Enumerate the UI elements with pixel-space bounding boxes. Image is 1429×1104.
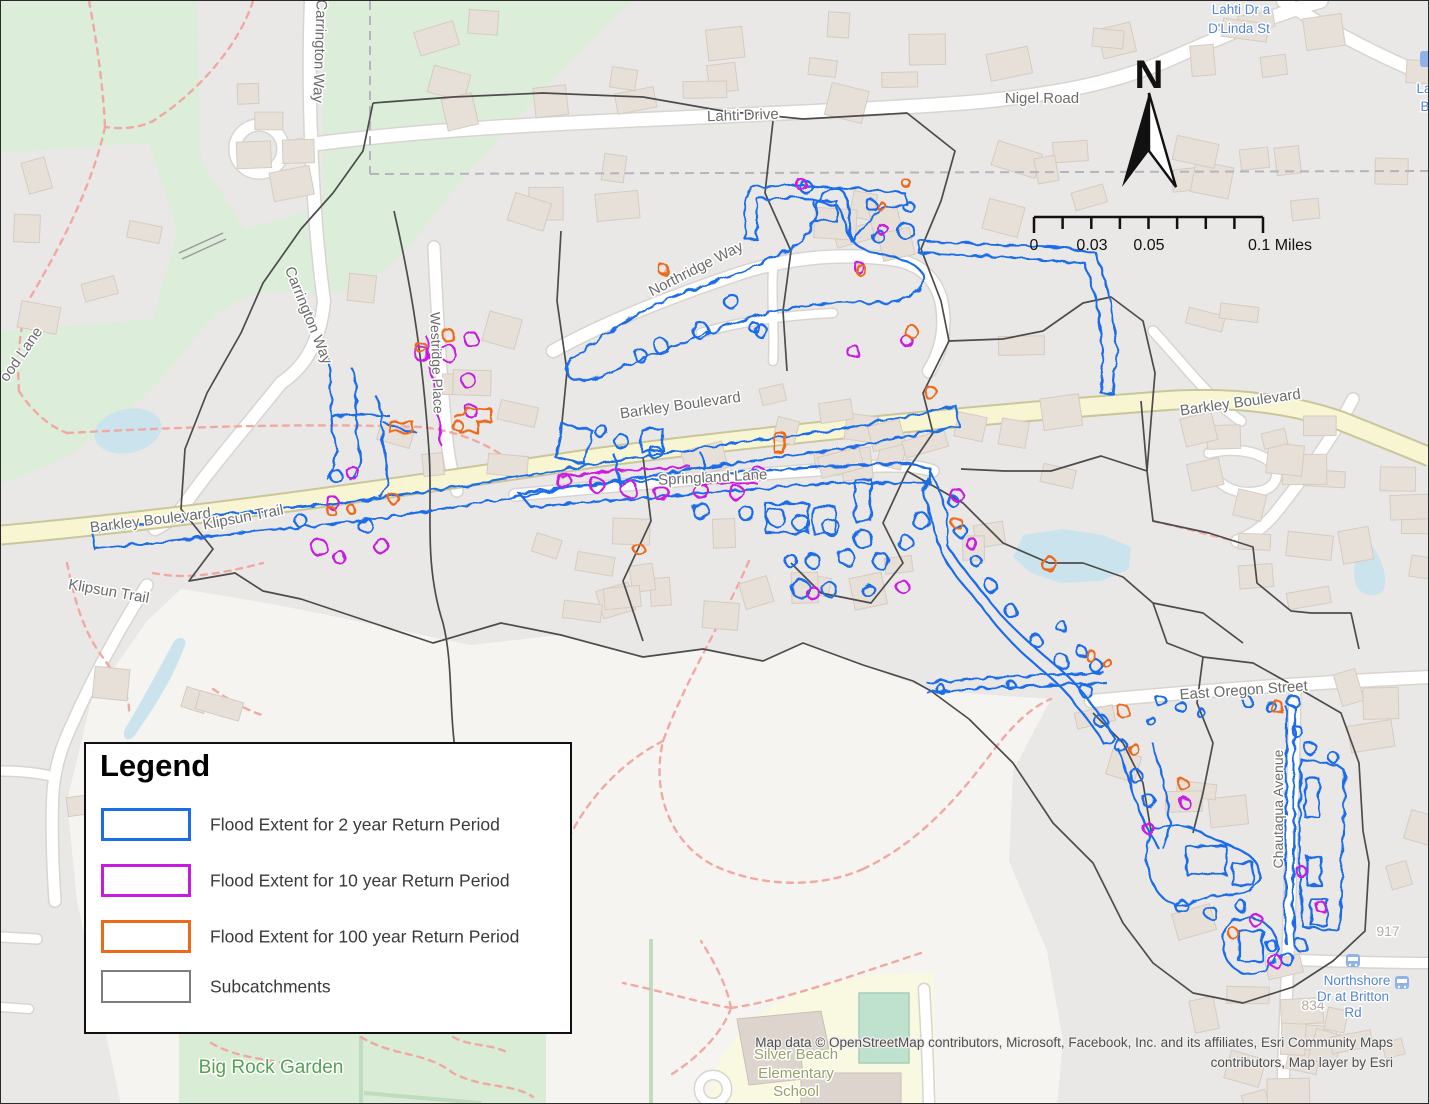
transit-label-northshore-2: Dr at Britton [1317,989,1389,1004]
legend-item-subcatchments: Subcatchments [86,970,570,1004]
attribution-line-2: contributors, Map layer by Esri [1211,1055,1393,1070]
place-label-school-3: School [773,1083,819,1100]
place-label-big-rock-garden: Big Rock Garden [199,1057,344,1078]
legend-swatch-2yr [101,808,191,841]
scale-label-01-miles: 0.1 Miles [1248,237,1312,254]
transit-label-northshore-1: Northshore [1324,973,1391,988]
transit-label-edge-b: B [1420,99,1429,114]
place-label-school-2: Elementary [758,1065,834,1082]
north-arrow-n-label: N [1135,53,1164,97]
legend-item-10yr: Flood Extent for 10 year Return Period [86,864,570,898]
bus-icon [1346,954,1360,967]
bus-icon [1420,51,1429,67]
legend-label-subcatchments: Subcatchments [210,977,331,998]
transit-label-northshore-3: Rd [1344,1005,1361,1020]
scale-label-005: 0.05 [1133,237,1164,254]
street-label-lahti-drive: Lahti Drive [707,106,779,125]
transit-label-edge-la: La [1416,81,1429,96]
transit-label-lahti-dlinda-1: Lahti Dr a [1212,2,1271,17]
legend-swatch-10yr [101,864,191,897]
transit-label-lahti-dlinda-2: D'Linda St [1208,21,1270,36]
legend-label-100yr: Flood Extent for 100 year Return Period [210,927,519,948]
map-layout-page: Nigel Road Lahti Drive Carrington Way Ca… [0,0,1429,1104]
attribution-line-1: Map data © OpenStreetMap contributors, M… [755,1035,1393,1050]
legend-title: Legend [100,748,210,784]
legend-item-2yr: Flood Extent for 2 year Return Period [86,808,570,842]
legend-item-100yr: Flood Extent for 100 year Return Period [86,920,570,954]
legend-panel: Legend Flood Extent for 2 year Return Pe… [84,742,572,1034]
street-label-carrington-way-1: Carrington Way [309,1,330,104]
scale-label-0: 0 [1030,237,1039,254]
legend-label-10yr: Flood Extent for 10 year Return Period [210,871,510,892]
legend-label-2yr: Flood Extent for 2 year Return Period [210,815,500,836]
house-number-917: 917 [1376,923,1400,939]
street-label-chautaqua-avenue: Chautaqua Avenue [1270,749,1286,868]
legend-swatch-100yr [101,920,191,953]
scale-label-003: 0.03 [1076,237,1107,254]
legend-swatch-subcatchments [101,970,191,1003]
bus-icon [1395,976,1409,989]
street-label-nigel-road: Nigel Road [1005,90,1079,107]
